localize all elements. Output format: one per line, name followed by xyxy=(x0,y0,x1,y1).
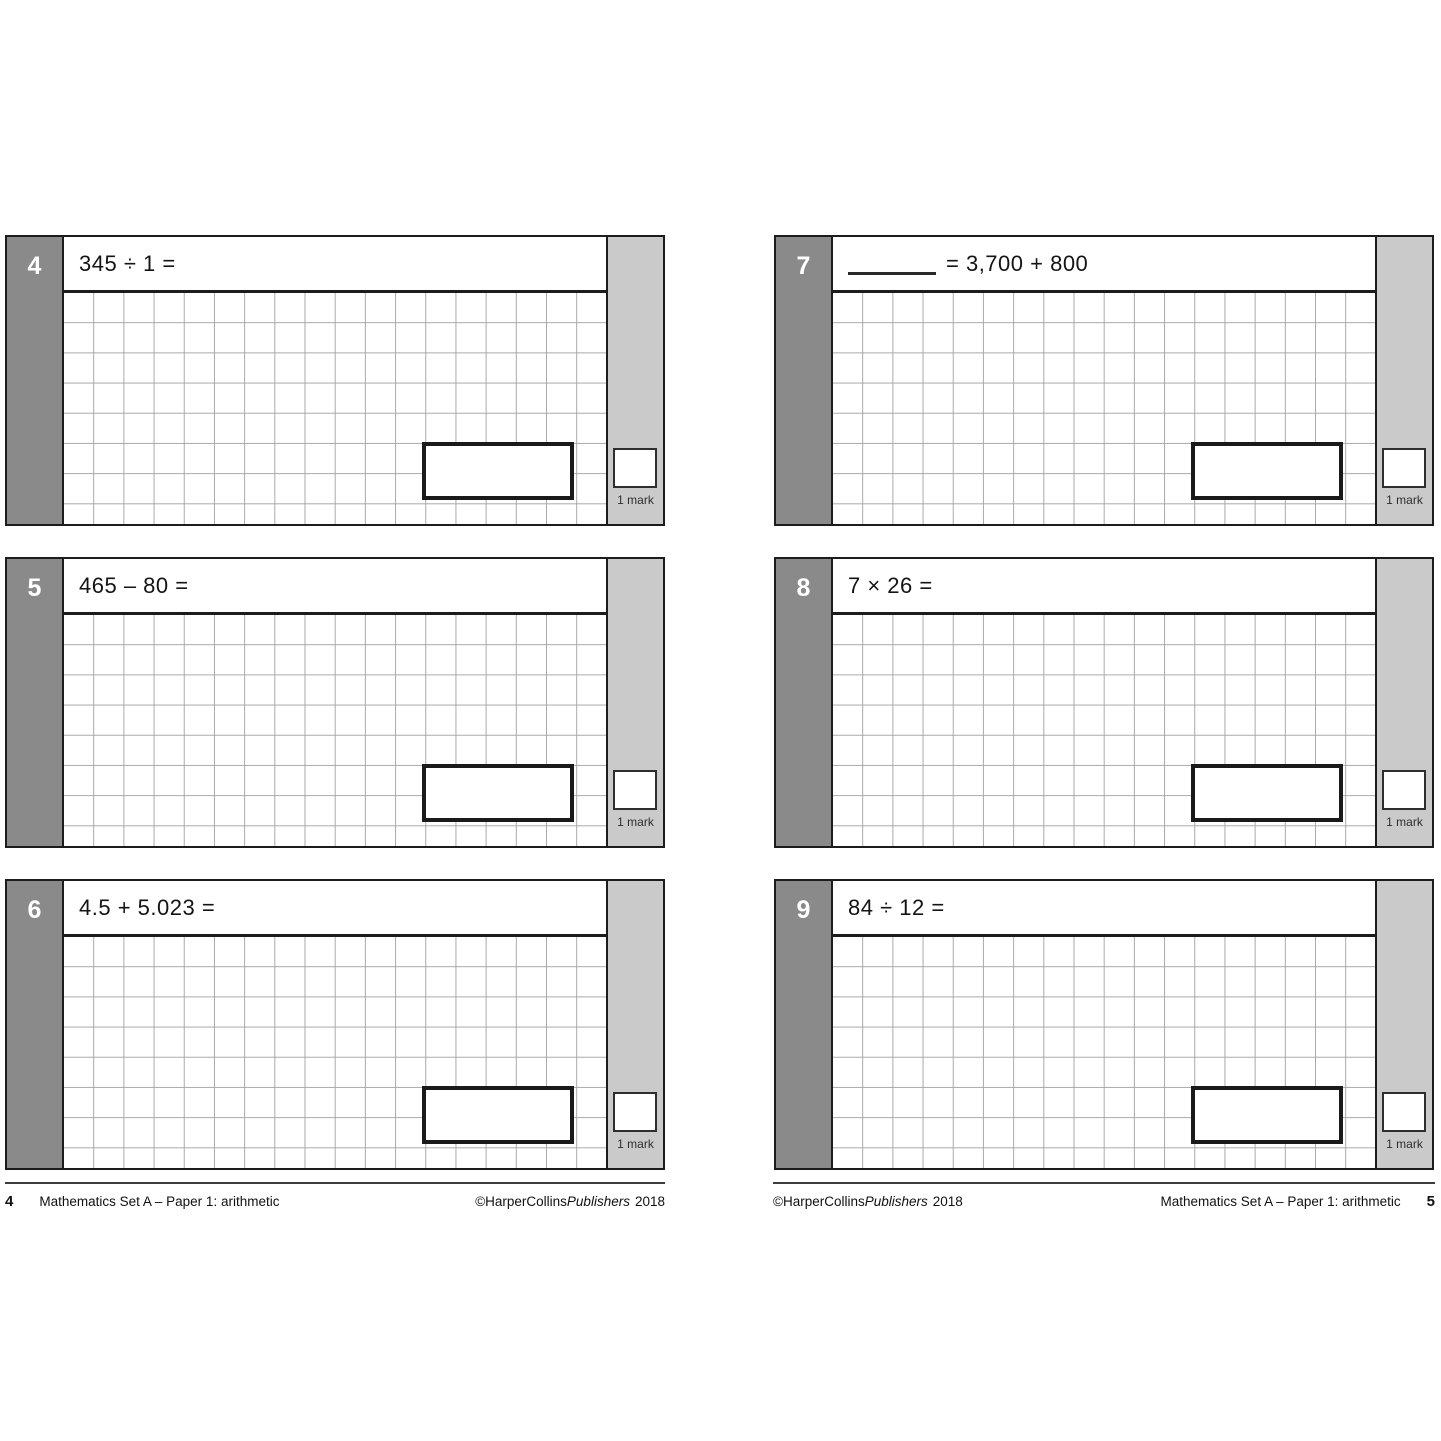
page-number: 5 xyxy=(1427,1193,1435,1210)
footer-copyright: ©HarperCollinsPublishers2018 xyxy=(475,1194,665,1209)
footer-right-page: ©HarperCollinsPublishers2018 Mathematics… xyxy=(773,1182,1435,1210)
question-main: 465 – 80 = xyxy=(64,559,606,846)
mark-column: 1 mark xyxy=(1375,881,1432,1168)
question-main: 4.5 + 5.023 = xyxy=(64,881,606,1168)
question-number-badge: 8 xyxy=(776,559,833,846)
answer-box[interactable] xyxy=(422,1086,574,1144)
footer-copyright: ©HarperCollinsPublishers2018 xyxy=(773,1194,963,1209)
question-block-4: 4 345 ÷ 1 = 1 mark xyxy=(5,235,665,526)
answer-box[interactable] xyxy=(422,764,574,822)
question-number-badge: 9 xyxy=(776,881,833,1168)
question-text: 7 × 26 = xyxy=(848,573,933,599)
question-block-7: 7 = 3,700 + 800 1 mark xyxy=(774,235,1434,526)
question-number-badge: 5 xyxy=(7,559,64,846)
answer-box[interactable] xyxy=(1191,442,1343,500)
mark-label: 1 mark xyxy=(1377,1137,1432,1151)
question-header: 465 – 80 = xyxy=(64,559,606,615)
copyright-year: 2018 xyxy=(933,1194,963,1209)
mark-entry-box[interactable] xyxy=(1382,448,1426,488)
footer-title: Mathematics Set A – Paper 1: arithmetic xyxy=(39,1194,279,1209)
question-main: 345 ÷ 1 = xyxy=(64,237,606,524)
question-number: 6 xyxy=(28,896,42,924)
question-number: 8 xyxy=(797,574,811,602)
answer-box[interactable] xyxy=(1191,1086,1343,1144)
mark-column: 1 mark xyxy=(1375,559,1432,846)
mark-column: 1 mark xyxy=(1375,237,1432,524)
footer-left-page: 4 Mathematics Set A – Paper 1: arithmeti… xyxy=(5,1182,665,1210)
question-header: 4.5 + 5.023 = xyxy=(64,881,606,937)
copyright-year: 2018 xyxy=(635,1194,665,1209)
question-block-6: 6 4.5 + 5.023 = 1 mark xyxy=(5,879,665,1170)
question-block-5: 5 465 – 80 = 1 mark xyxy=(5,557,665,848)
page-number: 4 xyxy=(5,1193,13,1210)
question-block-9: 9 84 ÷ 12 = 1 mark xyxy=(774,879,1434,1170)
question-main: 7 × 26 = xyxy=(833,559,1375,846)
question-text: = 3,700 + 800 xyxy=(946,251,1088,277)
question-text: 84 ÷ 12 = xyxy=(848,895,945,921)
mark-label: 1 mark xyxy=(608,493,663,507)
question-main: = 3,700 + 800 xyxy=(833,237,1375,524)
question-text: 4.5 + 5.023 = xyxy=(79,895,215,921)
copyright-prefix: ©HarperCollins xyxy=(773,1194,865,1209)
mark-column: 1 mark xyxy=(606,881,663,1168)
copyright-publisher: Publishers xyxy=(865,1194,928,1209)
mark-entry-box[interactable] xyxy=(613,448,657,488)
mark-label: 1 mark xyxy=(1377,493,1432,507)
question-number-badge: 7 xyxy=(776,237,833,524)
question-number: 9 xyxy=(797,896,811,924)
answer-box[interactable] xyxy=(1191,764,1343,822)
question-header: = 3,700 + 800 xyxy=(833,237,1375,293)
question-header: 84 ÷ 12 = xyxy=(833,881,1375,937)
question-number: 4 xyxy=(28,252,42,280)
copyright-prefix: ©HarperCollins xyxy=(475,1194,567,1209)
mark-entry-box[interactable] xyxy=(613,770,657,810)
mark-column: 1 mark xyxy=(606,559,663,846)
question-header: 345 ÷ 1 = xyxy=(64,237,606,293)
mark-entry-box[interactable] xyxy=(613,1092,657,1132)
question-number-badge: 4 xyxy=(7,237,64,524)
footer-right-group: Mathematics Set A – Paper 1: arithmetic … xyxy=(1161,1193,1435,1210)
footer-left-group: 4 Mathematics Set A – Paper 1: arithmeti… xyxy=(5,1193,279,1210)
footer-title: Mathematics Set A – Paper 1: arithmetic xyxy=(1161,1194,1401,1209)
question-header: 7 × 26 = xyxy=(833,559,1375,615)
answer-blank-line[interactable] xyxy=(848,253,936,275)
question-number-badge: 6 xyxy=(7,881,64,1168)
mark-entry-box[interactable] xyxy=(1382,770,1426,810)
question-number: 7 xyxy=(797,252,811,280)
question-text: 465 – 80 = xyxy=(79,573,189,599)
question-main: 84 ÷ 12 = xyxy=(833,881,1375,1168)
mark-entry-box[interactable] xyxy=(1382,1092,1426,1132)
question-block-8: 8 7 × 26 = 1 mark xyxy=(774,557,1434,848)
copyright-publisher: Publishers xyxy=(567,1194,630,1209)
question-text: 345 ÷ 1 = xyxy=(79,251,176,277)
answer-box[interactable] xyxy=(422,442,574,500)
mark-label: 1 mark xyxy=(608,815,663,829)
mark-label: 1 mark xyxy=(608,1137,663,1151)
mark-column: 1 mark xyxy=(606,237,663,524)
mark-label: 1 mark xyxy=(1377,815,1432,829)
question-number: 5 xyxy=(28,574,42,602)
